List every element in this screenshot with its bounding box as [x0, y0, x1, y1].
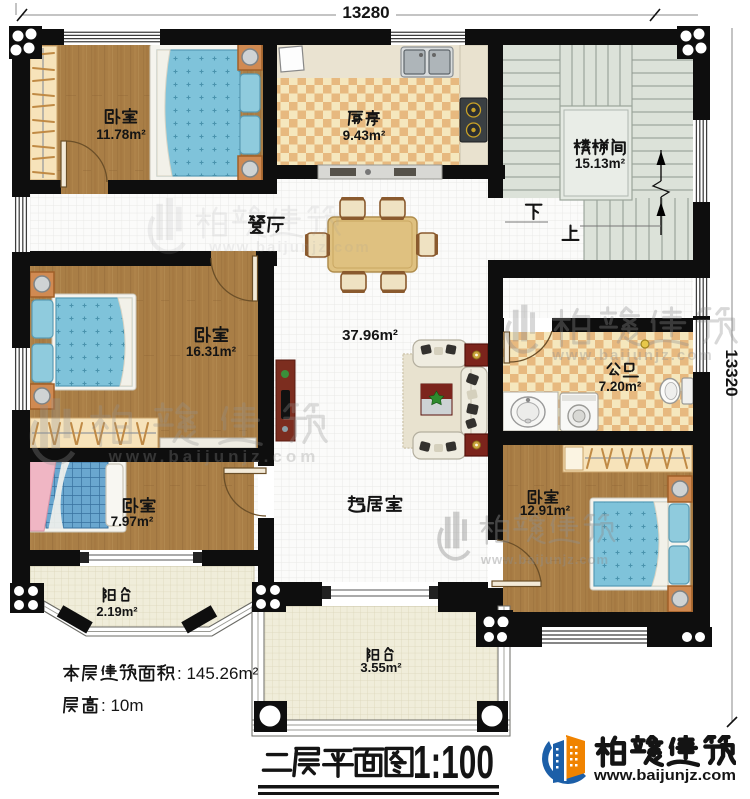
svg-text:2.19m²: 2.19m²	[96, 604, 138, 619]
svg-text:13320: 13320	[722, 349, 741, 396]
svg-text:13280: 13280	[342, 3, 389, 22]
svg-text:12.91m²: 12.91m²	[520, 503, 571, 518]
svg-text:7.97m²: 7.97m²	[111, 514, 154, 529]
svg-text:7.20m²: 7.20m²	[599, 379, 642, 394]
svg-text:www.baijunjz.com: www.baijunjz.com	[480, 552, 609, 567]
svg-text:9.43m²: 9.43m²	[343, 128, 386, 143]
svg-text:: 10m: : 10m	[101, 696, 144, 715]
svg-text:15.13m²: 15.13m²	[575, 156, 626, 171]
svg-text:: 145.26m²: : 145.26m²	[177, 664, 259, 683]
svg-text:www.baijunjz.com: www.baijunjz.com	[593, 767, 736, 784]
svg-text:37.96m²: 37.96m²	[342, 327, 398, 344]
svg-text:www.baijunjz.com: www.baijunjz.com	[108, 447, 320, 466]
svg-text:1:100: 1:100	[413, 736, 494, 788]
svg-text:www.baijunjz.com: www.baijunjz.com	[208, 239, 370, 256]
svg-text:www.baijunjz.com: www.baijunjz.com	[551, 347, 713, 364]
svg-text:3.55m²: 3.55m²	[360, 660, 402, 675]
svg-text:11.78m²: 11.78m²	[96, 127, 146, 142]
svg-text:16.31m²: 16.31m²	[186, 344, 237, 359]
